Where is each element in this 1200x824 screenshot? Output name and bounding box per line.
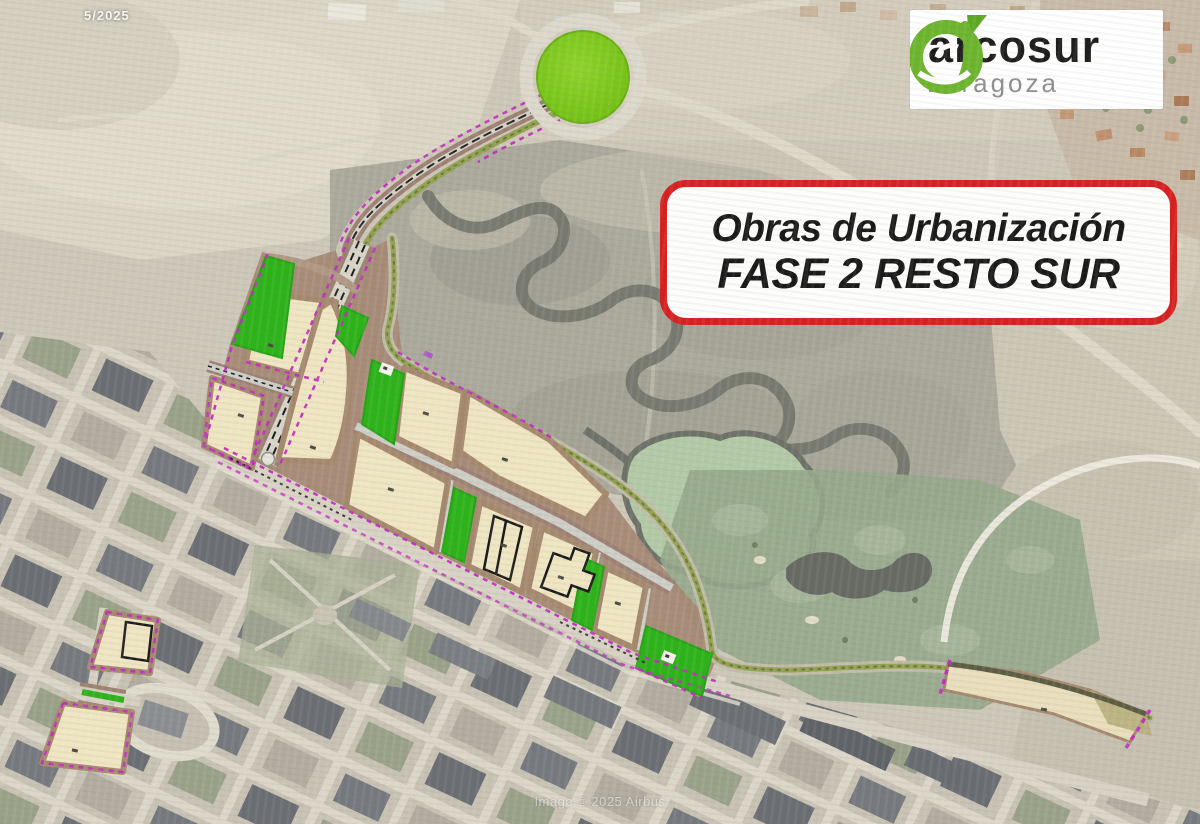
title-callout: Obras de Urbanización FASE 2 RESTO SUR [660, 180, 1177, 325]
roundabout [526, 20, 640, 134]
satellite-map [0, 0, 1200, 824]
callout-line-1: Obras de Urbanización [711, 209, 1125, 248]
arcosur-logo-icon [910, 10, 990, 96]
map-canvas: 5/2025 arcosur zaragoza Obras de Urbaniz… [0, 0, 1200, 824]
roundabout-green-circle [537, 31, 629, 123]
callout-line-2: FASE 2 RESTO SUR [717, 253, 1119, 296]
logo-card: arcosur zaragoza [910, 10, 1163, 109]
